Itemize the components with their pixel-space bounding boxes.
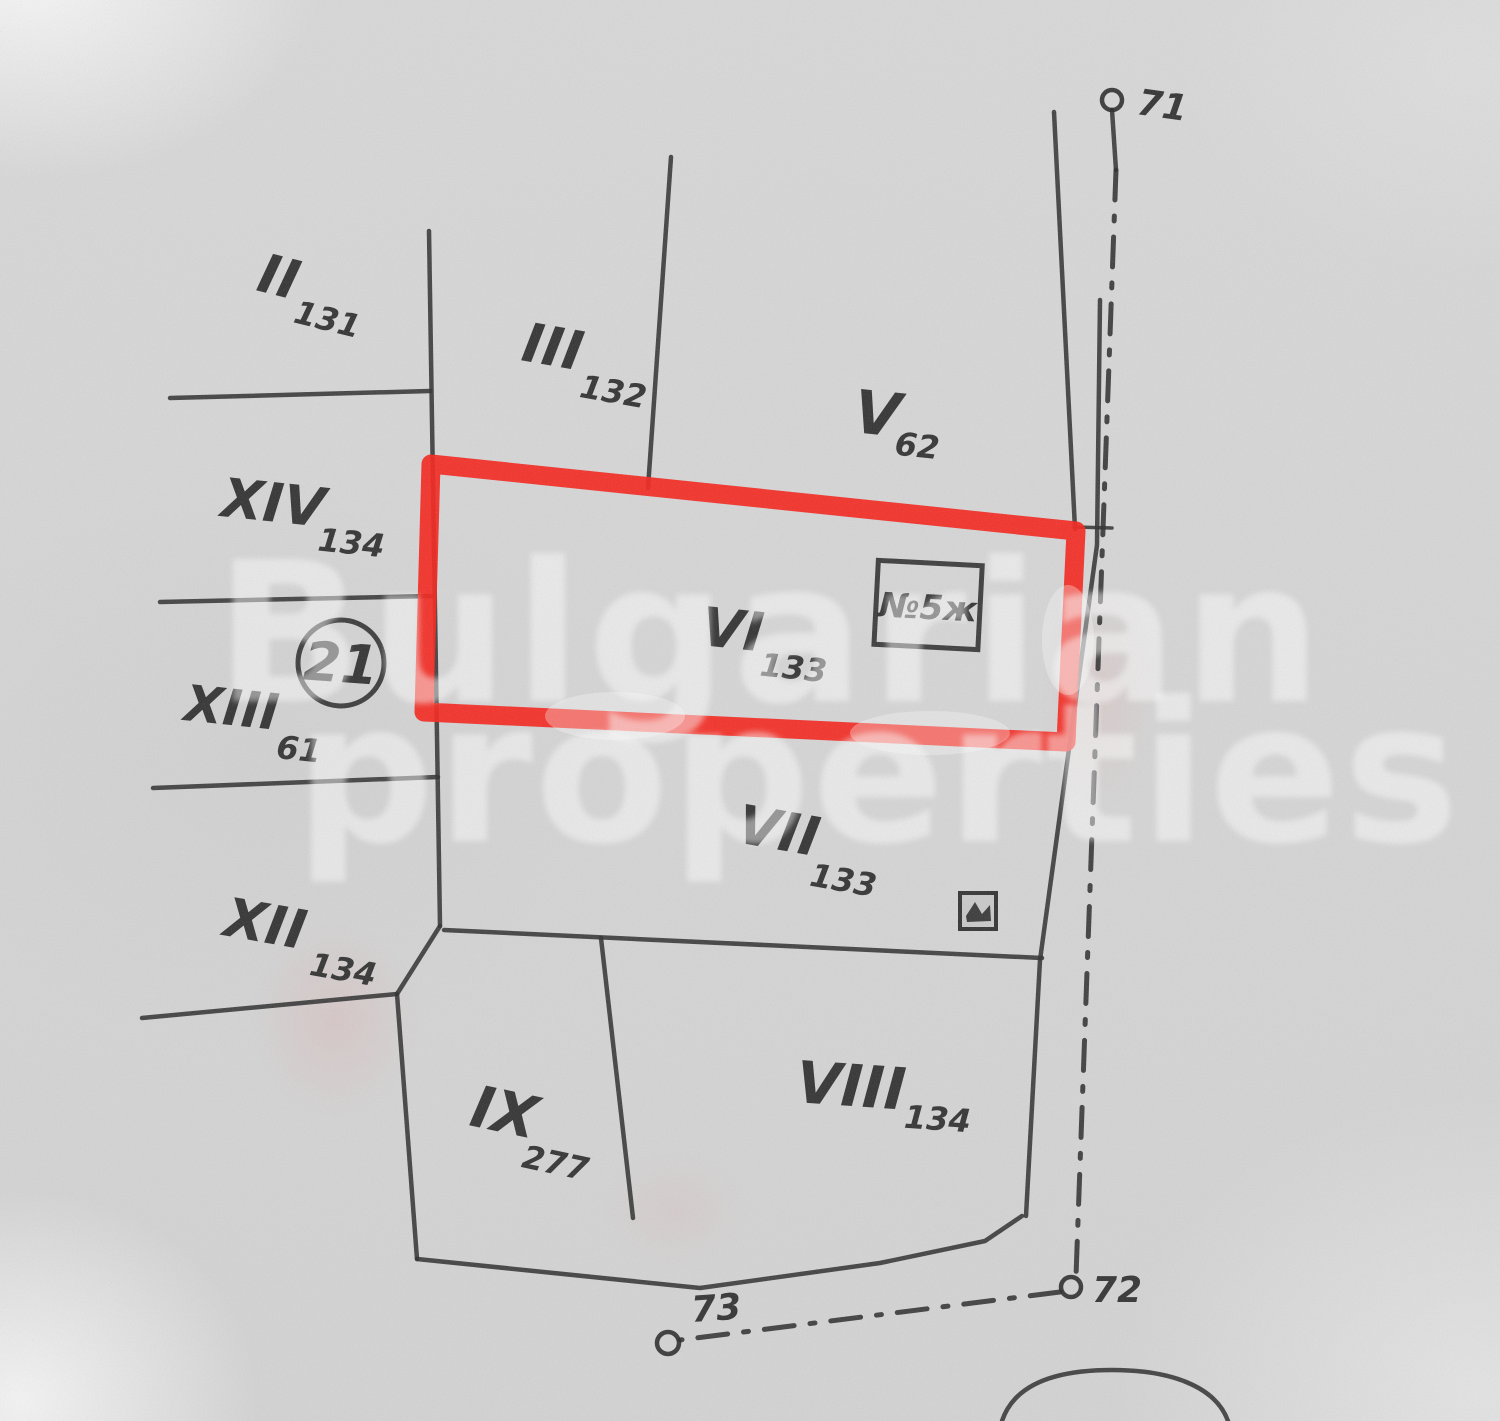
parcel-xii-numeral: XII: [217, 885, 311, 962]
parcel-vii-sub: 133: [807, 856, 879, 905]
boundary-vii-bottom: [444, 930, 1042, 958]
building-box-label: №5ж: [876, 585, 980, 630]
boundary-ii-xiv: [170, 391, 430, 398]
boundary-ix-viii: [601, 938, 633, 1218]
boundary-viii-bottom: [417, 1216, 1022, 1288]
parcel-xiv-sub: 134: [316, 520, 386, 565]
survey-point-72-label: 72: [1092, 1270, 1142, 1311]
survey-point-73-marker: [657, 1332, 679, 1354]
cadastral-map-scan: II 131 III 132 V 62 VI 133 VII 133 VIII …: [0, 0, 1500, 1421]
parcel-vii-numeral: VII: [733, 793, 825, 869]
parcel-viii-sub: 134: [903, 1098, 972, 1141]
watermark-wash: [1042, 585, 1094, 695]
boundary-v-right: [1054, 112, 1075, 529]
parcel-label-xiv: XIV 134: [214, 466, 391, 565]
parcel-xiv-numeral: XIV: [216, 466, 333, 540]
watermark-wash: [850, 711, 1010, 755]
parcel-xii-sub: 134: [307, 945, 379, 994]
circled-number-21-text: 21: [301, 629, 380, 697]
parcel-label-xii: XII 134: [213, 885, 387, 994]
boundary-xiii-xii: [153, 777, 438, 788]
small-square-symbol: [960, 893, 996, 929]
parcel-label-iii: III 132: [514, 311, 657, 416]
parcel-v-sub: 62: [893, 425, 941, 467]
building-box: №5ж: [874, 560, 982, 649]
parcel-iii-numeral: III: [518, 311, 588, 384]
parcel-label-ii: II 131: [248, 241, 375, 345]
watermark-wash: [545, 692, 685, 740]
map-drawing: II 131 III 132 V 62 VI 133 VII 133 VIII …: [0, 0, 1500, 1421]
parcel-label-vi: VI 133: [697, 595, 834, 690]
dashdot-line-71-72: [1076, 170, 1116, 1276]
boundary-xii-bottom: [142, 994, 397, 1018]
point-71-stem: [1112, 110, 1116, 170]
survey-point-73-label: 73: [690, 1287, 743, 1331]
boundary-corner-diagonal: [397, 926, 440, 994]
survey-point-72-marker: [1061, 1277, 1081, 1297]
survey-point-71-marker: [1102, 90, 1122, 110]
circled-number-21: 21: [298, 620, 384, 706]
parcel-ix-sub: 277: [519, 1137, 593, 1188]
boundary-ix-left: [397, 994, 417, 1259]
parcel-ii-sub: 131: [290, 293, 364, 346]
boundary-xiv-xiii: [160, 596, 432, 602]
parcel-label-viii: VIII 134: [793, 1048, 975, 1140]
bottom-arc: [1002, 1370, 1228, 1421]
parcel-iii-sub: 132: [577, 367, 649, 416]
parcel-xiii-numeral: XIII: [179, 674, 282, 742]
parcel-viii-numeral: VIII: [794, 1048, 908, 1123]
boundary-iii-v: [648, 157, 671, 488]
parcel-vi-numeral: VI: [699, 595, 767, 664]
parcel-vi-sub: 133: [758, 646, 828, 691]
survey-point-71-label: 71: [1135, 82, 1190, 130]
parcel-label-vii: VII 133: [728, 793, 888, 905]
parcel-label-ix: IX 277: [460, 1072, 604, 1189]
boundary-right-edge: [1026, 300, 1100, 1216]
parcel-xiii-sub: 61: [275, 728, 323, 770]
parcel-label-v: V 62: [849, 377, 946, 467]
